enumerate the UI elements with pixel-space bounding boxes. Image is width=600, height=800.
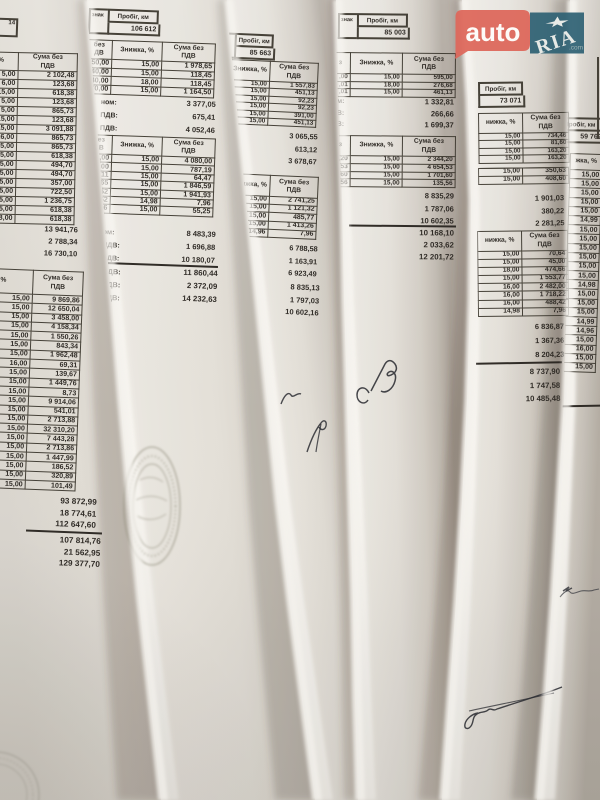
svg-text:auto: auto bbox=[466, 17, 521, 47]
svg-text:.com: .com bbox=[569, 45, 583, 52]
